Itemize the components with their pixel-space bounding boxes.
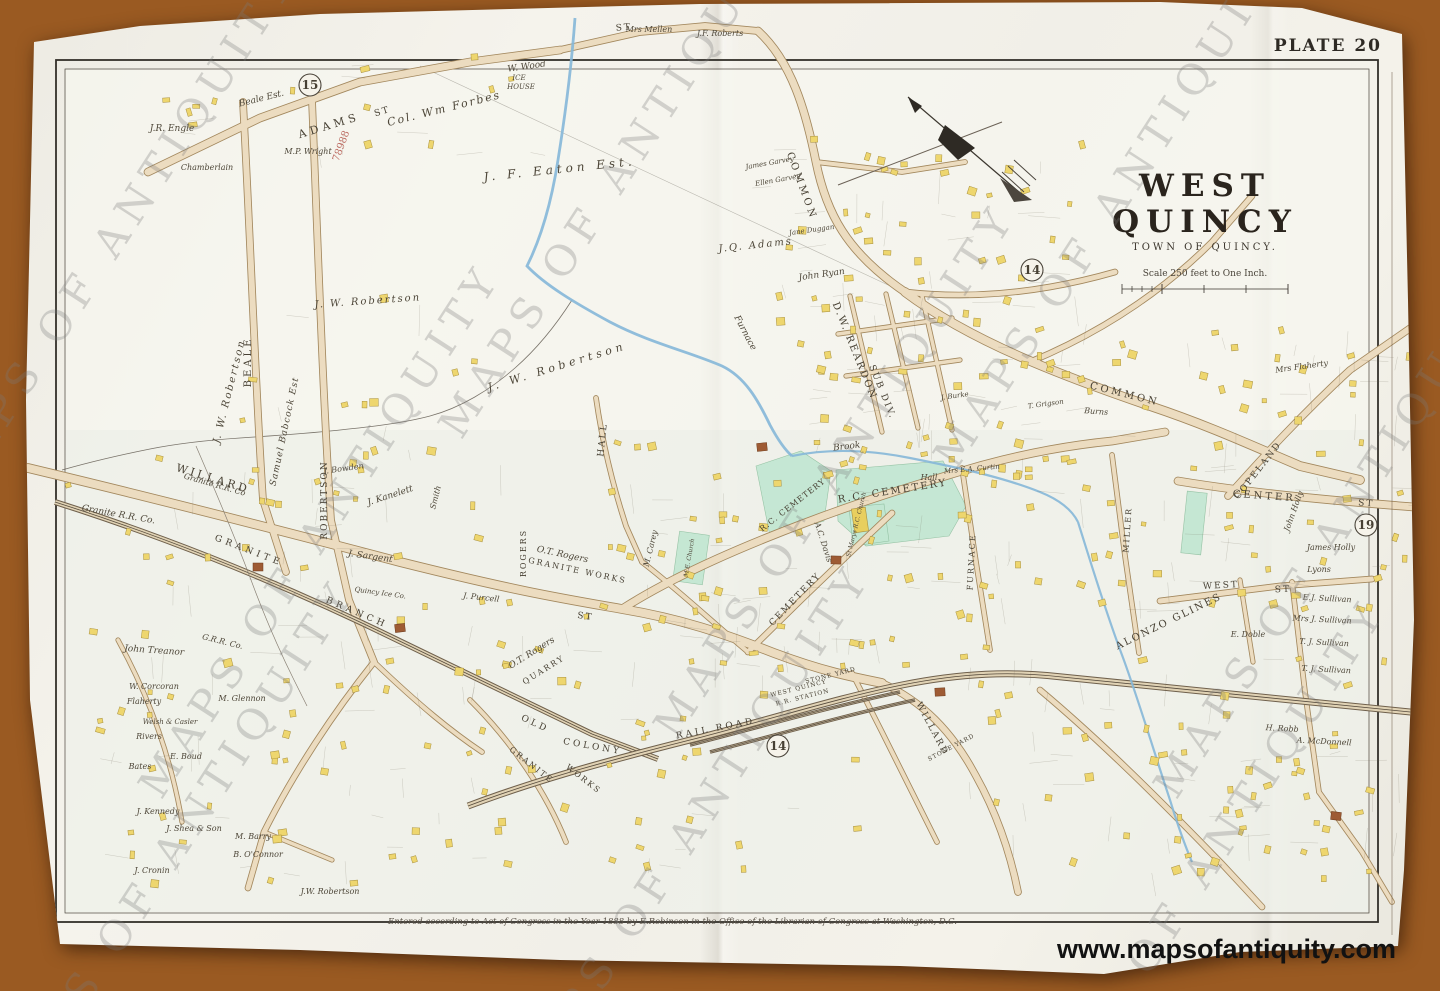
map-scale-note: Scale 250 feet to One Inch. [1055,269,1355,279]
building [759,587,767,594]
building [989,594,994,599]
building [1228,786,1234,793]
building [719,512,727,517]
building [252,468,259,473]
building [635,817,642,825]
copyright-line: Entered according to Act of Congress in … [388,917,1008,927]
map-label: W. Corcoran [129,682,179,691]
building [1418,352,1424,357]
building [1366,604,1373,612]
building [883,250,891,255]
building-red [757,442,768,451]
building [877,510,882,517]
building [412,828,420,835]
building [851,757,859,762]
building [810,136,817,142]
building [988,716,996,724]
building [1392,533,1399,542]
building [207,803,212,810]
building [693,608,698,615]
building [1045,794,1052,801]
building [1303,793,1310,800]
building [1105,722,1112,728]
building [1082,485,1090,492]
building [1026,504,1034,511]
building [1091,553,1098,561]
building [795,529,803,536]
map-label: Flaherty [126,697,162,706]
building [859,464,866,470]
building [1015,561,1020,568]
map-label: Burns [1083,406,1109,417]
building [1243,380,1253,389]
building [1112,359,1120,366]
building [1321,876,1326,882]
map-sheet-wrap: ADAMSSTSTCOMMONCOMMONBEALEROBERTSONWILLA… [0,0,1440,991]
map-label: Bates [128,762,152,771]
building [899,222,906,227]
building [1109,532,1118,539]
building [608,544,612,549]
map-label: Mrs Mellen [625,25,673,34]
building [1178,814,1182,820]
building [898,369,907,375]
building [830,373,838,380]
building [1197,868,1204,876]
building [283,758,289,763]
building [991,480,997,488]
map-label: M. Barry [234,832,272,841]
lot-line [352,65,374,66]
plate-number: PLATE 20 [1274,36,1382,56]
building [658,550,666,557]
map-sheet-paper: ADAMSSTSTCOMMONCOMMONBEALEROBERTSONWILLA… [0,0,1440,991]
building [455,667,464,676]
building [986,193,992,198]
building [853,826,861,832]
lot-line [1393,833,1396,856]
map-label: ST [1275,585,1292,596]
building [498,818,506,826]
building [963,310,969,318]
building [918,354,924,361]
building [89,628,98,635]
building [1322,825,1330,833]
building [506,599,512,606]
building [936,155,942,162]
building [1307,520,1314,525]
map-subtitle: TOWN OF QUINCY. [1055,242,1355,253]
building [657,769,666,778]
adjacent-plate-number: 14 [770,739,787,753]
building [983,645,990,650]
building [774,480,782,486]
building [978,681,984,688]
building [1181,750,1187,756]
map-label: ROGERS [519,529,528,577]
building [1406,353,1412,361]
building [193,104,200,108]
building [300,565,308,571]
building [870,640,875,646]
building [1085,773,1094,782]
building [423,603,428,609]
map-label: J. Kennedy [135,807,180,816]
building [147,712,152,717]
building [505,766,512,774]
building [904,311,910,317]
building [1276,757,1281,763]
building [1004,692,1012,699]
building [333,490,339,495]
building [1237,589,1246,596]
building [607,763,613,768]
building [1013,473,1020,480]
lot-line [1395,357,1398,371]
map-label: J.F. Roberts [695,29,743,38]
building [270,751,279,759]
building [1141,522,1146,527]
building [1043,456,1049,462]
building [820,414,828,422]
map-label: Welsh & Casler [143,718,198,726]
map-label: J.W. Robertson [299,887,360,896]
building [1214,441,1223,450]
map-label: ICE [511,74,525,82]
building [644,730,650,736]
building [353,496,357,501]
building [128,830,134,835]
map-label: James Holly [1305,543,1356,552]
map-label: B. O'Connor [232,850,284,859]
building [424,743,431,749]
building [1174,836,1181,843]
building [749,651,758,656]
building [824,351,831,359]
building [272,835,281,843]
building [1199,372,1208,381]
building [1316,451,1325,457]
lot-line [1418,337,1440,339]
building [776,317,785,325]
building [966,614,972,622]
building [864,238,873,244]
building [284,679,290,683]
building [814,440,820,445]
photo-of-antique-map: ADAMSSTSTCOMMONCOMMONBEALEROBERTSONWILLA… [0,0,1440,991]
adjacent-plate-number: 19 [1358,518,1375,532]
building [259,498,265,504]
lot-line [1378,357,1394,358]
building [427,446,437,455]
building [1262,399,1266,403]
building [960,654,968,660]
building [445,839,452,847]
building [1223,711,1230,718]
building [470,502,475,510]
building [1000,359,1007,364]
building [1034,578,1042,585]
building [641,736,646,740]
building-red [1331,811,1342,820]
building [275,501,281,508]
map-label: H. Robb [1264,723,1299,734]
building [1190,466,1196,471]
building [972,212,980,218]
lot-line [1393,488,1423,489]
building [320,768,328,776]
building [797,340,804,347]
map-label: E. Doble [1230,630,1266,639]
building [634,444,640,450]
map-label: E. Boud [169,752,202,761]
building [626,553,634,561]
building [1293,758,1299,766]
map-image: ADAMSSTSTCOMMONCOMMONBEALEROBERTSONWILLA… [0,0,1440,991]
building [471,359,477,364]
building [143,554,149,560]
building [608,488,616,495]
building [1037,352,1041,359]
building [1245,766,1253,774]
building [692,748,701,756]
building [735,841,742,849]
scale-bar [1120,281,1290,295]
building [973,318,980,327]
building [889,636,895,642]
map-label: ST [1358,498,1375,509]
building [370,399,379,407]
building [1266,566,1271,572]
building [97,718,103,723]
building [1275,354,1281,362]
building [1249,525,1254,533]
map-label: Lyons [1306,565,1331,574]
building [1149,756,1159,765]
building [1211,330,1218,336]
building [865,213,870,218]
building [822,304,830,312]
map-label: Chamberlain [181,163,233,172]
building [1231,344,1238,351]
building [1380,564,1386,570]
building [732,516,738,523]
building [350,880,358,886]
building [1251,792,1257,800]
building [877,156,886,165]
building [1402,555,1407,562]
building [719,517,724,524]
building [1251,553,1257,558]
building [1291,593,1300,599]
building [205,554,210,561]
map-label: M. Glennon [217,694,265,703]
building [979,373,988,379]
map-label: Rivers [135,732,162,741]
building [1227,512,1233,518]
building [901,162,908,167]
building [1025,475,1032,480]
building [1153,570,1162,577]
building [902,662,909,667]
building [887,575,892,581]
building [386,658,394,665]
building [1359,439,1364,446]
building [336,683,343,689]
map-label: J. Cronin [132,866,169,875]
building [1366,869,1371,874]
map-label: WEST [1203,580,1239,592]
building [504,860,513,867]
building [179,840,187,845]
building [647,442,657,451]
map-label: Hall [920,473,938,482]
map-title: WEST QUINCY [1055,168,1355,240]
building [1107,500,1115,506]
building [1223,807,1229,814]
building [720,660,727,665]
map-label: J.R. Engle [148,124,195,134]
building [716,538,722,543]
building [1063,727,1072,734]
building [1295,417,1302,425]
building [778,665,784,672]
building [1123,833,1129,839]
building [1021,361,1029,369]
building [476,670,481,675]
lot-line [1394,416,1396,447]
building [950,439,958,445]
building [397,617,405,624]
building [690,516,697,521]
building [289,710,296,718]
building-red [935,688,945,697]
building [141,630,149,639]
building [130,851,135,859]
building [1118,580,1125,586]
building [843,209,848,216]
building [1343,495,1352,503]
building [1381,658,1386,666]
map-title-block: WEST QUINCY TOWN OF QUINCY. Scale 250 fe… [1055,168,1355,299]
building [1220,692,1229,701]
building [240,418,246,423]
building [471,54,478,61]
map-label: M.P. Wright [283,147,332,156]
building [150,879,159,887]
building [680,716,686,721]
building [1397,490,1404,496]
map-label: HOUSE [506,83,535,91]
building [1373,574,1382,582]
map-label: J. Shea & Son [164,824,221,833]
building [760,691,768,698]
building [362,401,367,408]
building [915,258,922,266]
building [949,456,955,462]
building [1349,381,1356,387]
building [1025,467,1032,472]
building [741,866,746,873]
building [1179,723,1183,730]
building [558,677,567,685]
building [954,382,962,389]
building [859,641,864,649]
building [495,827,502,835]
building [1350,392,1355,397]
building [958,512,966,518]
adjacent-plate-number: 15 [302,78,319,92]
building [163,98,170,103]
building [1320,848,1328,856]
building [993,799,999,806]
building [1314,820,1320,825]
adjacent-plate-number: 14 [1024,263,1041,277]
building-red [395,623,406,632]
building [921,452,928,457]
building-red [253,563,263,571]
building [394,553,403,560]
building [844,275,853,282]
building [1062,371,1070,377]
building [1332,731,1338,736]
building [689,659,694,665]
building [812,295,818,301]
building [363,104,370,111]
building [482,788,488,795]
seller-watermark-url: www.mapsofantiquity.com [1057,934,1396,965]
lot-line [1399,774,1400,803]
building [867,347,873,354]
building [918,277,925,284]
building [938,573,943,579]
building [389,854,396,860]
building [701,595,709,601]
building [290,87,295,94]
building [363,452,368,459]
building [856,297,863,302]
